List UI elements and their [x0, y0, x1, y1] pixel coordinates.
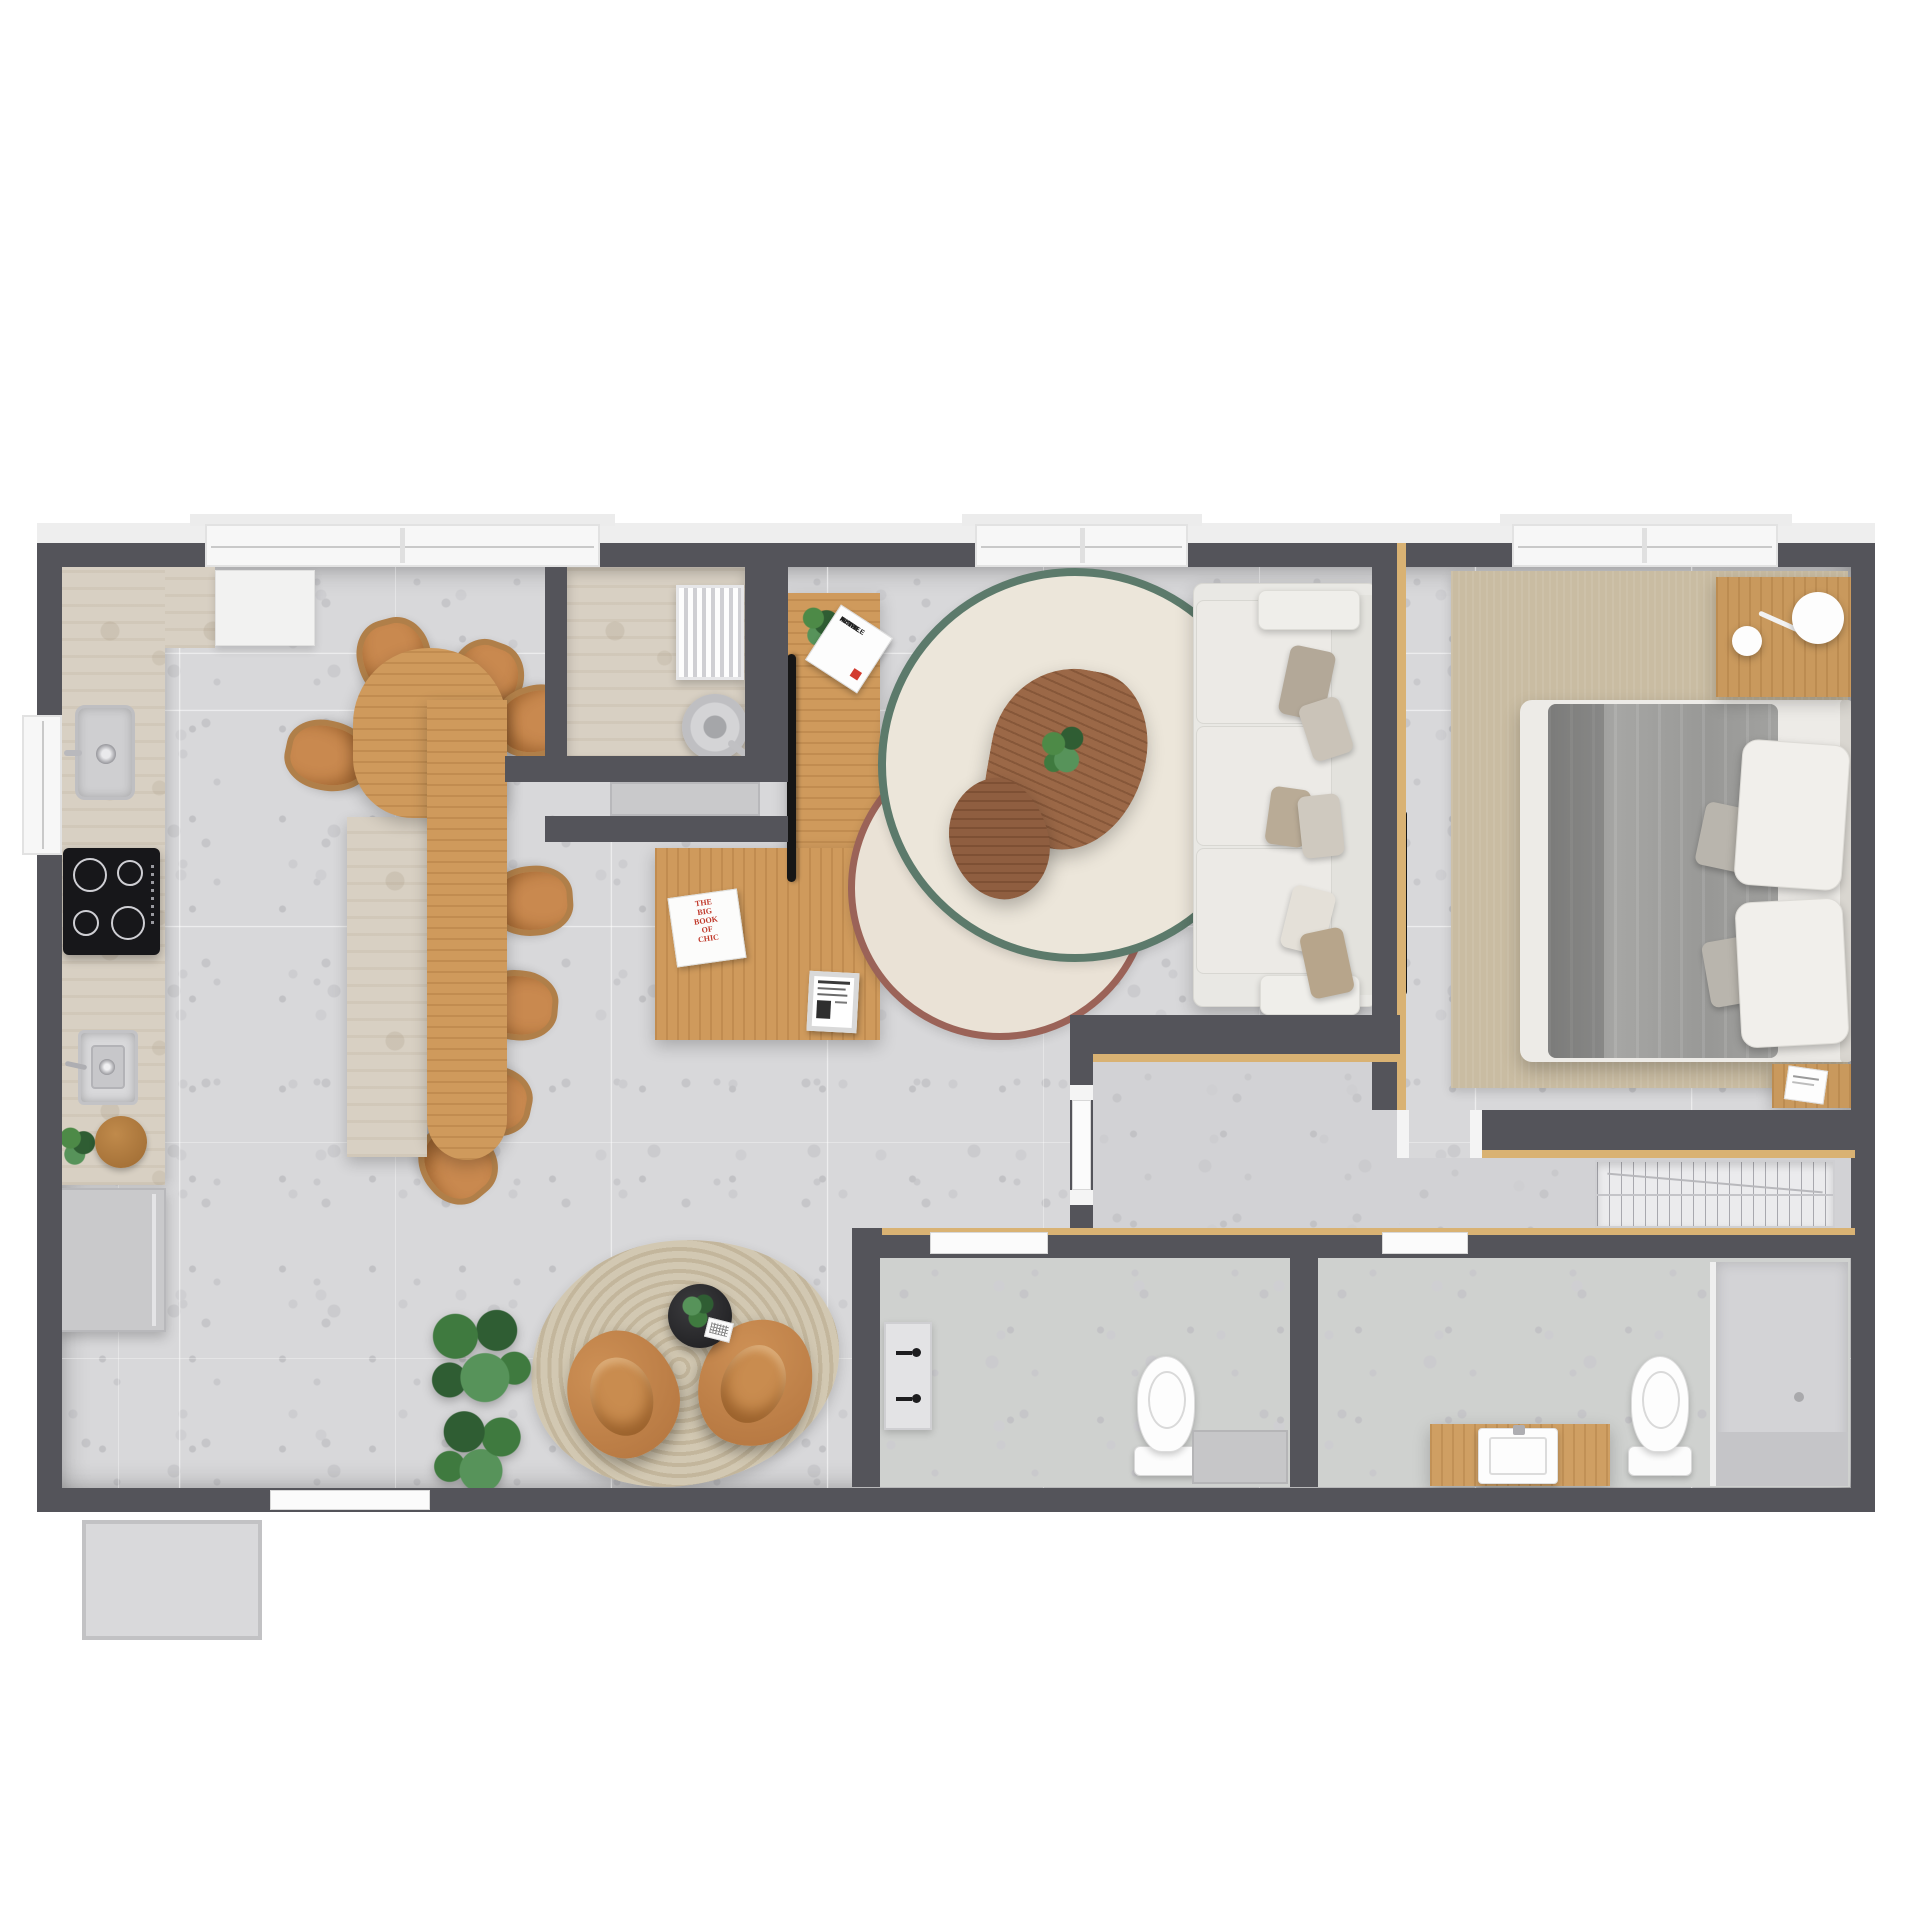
floorplan-canvas: A SMILE IN THE MIND THE BIG BOOK OF CHIC	[0, 0, 1920, 1920]
wall-bathroom-social-left	[852, 1228, 880, 1487]
window-living	[975, 524, 1188, 567]
wall-niche-ledge	[545, 816, 788, 842]
window-kitchen-left	[22, 715, 62, 855]
disc-lamp-icon	[1792, 592, 1844, 644]
coffee-table-plant	[1038, 722, 1090, 776]
frame-print-mark	[835, 1001, 847, 1004]
wardrobe-hangers	[1595, 1160, 1835, 1228]
kitchen-white-cabinet	[215, 570, 315, 646]
tap-spout-icon	[896, 1397, 912, 1401]
frame-print-mark	[818, 987, 846, 990]
window-mullion	[1642, 528, 1647, 563]
sofa-armrest-top	[1258, 590, 1360, 630]
booklet-text-mark	[1793, 1075, 1819, 1081]
niche-cabinet-front	[610, 782, 760, 816]
wardrobe-rail-diagonal	[1607, 1173, 1822, 1194]
door-jamb	[1070, 1190, 1093, 1205]
window-bedroom	[1512, 524, 1778, 567]
tv-icon	[787, 654, 796, 882]
sink-faucet-icon	[99, 1059, 115, 1075]
kitchen-sink	[78, 1030, 138, 1105]
wall-right	[1851, 543, 1875, 1512]
window-kitchen	[205, 524, 600, 567]
console-book-title-line: MIND	[838, 616, 857, 632]
throw-pillow	[1297, 793, 1345, 859]
dining-bench	[347, 817, 427, 1157]
trough-basin	[884, 1322, 932, 1430]
black-tap-icon	[912, 1348, 921, 1357]
radiator	[676, 585, 744, 680]
shower-drain-icon	[1794, 1392, 1804, 1402]
frame-print-mark	[817, 993, 847, 997]
card-pattern	[709, 1322, 729, 1337]
sink-faucet-icon	[1513, 1425, 1525, 1435]
window-mullion	[1080, 528, 1085, 563]
booklet-text-mark	[1792, 1081, 1814, 1086]
floor-corridor-left	[1093, 1062, 1400, 1228]
chair-seat	[710, 1335, 797, 1432]
refrigerator	[58, 1188, 166, 1332]
wall-niche-bottom	[505, 756, 788, 782]
frame-print-mark	[818, 980, 850, 985]
bed-pillow	[1734, 897, 1849, 1048]
door-bathroom-suite	[1382, 1232, 1468, 1254]
toilet-seat-line	[1148, 1371, 1186, 1429]
chair-seat	[580, 1349, 664, 1444]
basin-faucet-icon	[64, 750, 82, 756]
cooktop-controls	[151, 864, 154, 924]
round-pan	[682, 694, 748, 760]
wall-left	[37, 543, 62, 1512]
door-service	[270, 1490, 430, 1510]
door-bathroom-social	[930, 1232, 1048, 1254]
bed-pillow	[1733, 738, 1851, 891]
frame-print-mark	[816, 1000, 831, 1019]
door-jamb	[1070, 1085, 1093, 1100]
shower-glass	[1710, 1262, 1716, 1486]
suite-square-sink	[1478, 1428, 1558, 1484]
desk-book: THE BIG BOOK OF CHIC	[667, 888, 746, 967]
trim-bedroom-bottom	[1480, 1150, 1855, 1158]
burner-icon	[117, 860, 143, 886]
cutting-board	[95, 1116, 147, 1168]
sink-inner-line	[1489, 1437, 1547, 1475]
window-mullion	[400, 528, 405, 563]
burner-icon	[111, 906, 145, 940]
toilet-bowl	[1631, 1356, 1689, 1452]
trim-below-sofa	[1093, 1054, 1400, 1062]
dining-table-extension	[427, 700, 507, 1160]
fridge-handle	[152, 1194, 156, 1326]
bed-blanket-fold	[1548, 704, 1604, 1058]
exterior-service-box	[82, 1520, 262, 1640]
shower-area	[1716, 1262, 1848, 1486]
tap-spout-icon	[896, 1351, 912, 1355]
basin-drain-icon	[96, 744, 116, 764]
window-glass	[42, 721, 44, 849]
shower-bench	[1716, 1432, 1848, 1486]
wall-niche-left	[545, 567, 567, 762]
toilet-bowl	[1137, 1356, 1195, 1452]
wall-basin	[75, 705, 135, 800]
wall-niche-right	[745, 567, 788, 762]
shelf-booklet	[1784, 1065, 1828, 1104]
desk-picture-frame	[806, 971, 859, 1034]
disc-lamp-icon	[1732, 626, 1762, 656]
monstera-plant	[425, 1395, 537, 1500]
door-corridor	[1072, 1100, 1091, 1190]
toilet-seat-line	[1642, 1371, 1680, 1429]
burner-icon	[73, 858, 107, 892]
bathroom-social-counter	[1192, 1430, 1288, 1484]
door-jamb-bedroom	[1470, 1110, 1482, 1158]
wall-bathroom-separator	[1290, 1258, 1318, 1487]
burner-icon	[73, 910, 99, 936]
kitchen-counter-top-return	[165, 567, 215, 648]
black-tap-icon	[912, 1394, 921, 1403]
wardrobe-rail	[1597, 1194, 1833, 1196]
book-red-mark	[850, 668, 862, 680]
induction-cooktop	[63, 848, 160, 955]
door-jamb-bedroom	[1397, 1110, 1409, 1158]
